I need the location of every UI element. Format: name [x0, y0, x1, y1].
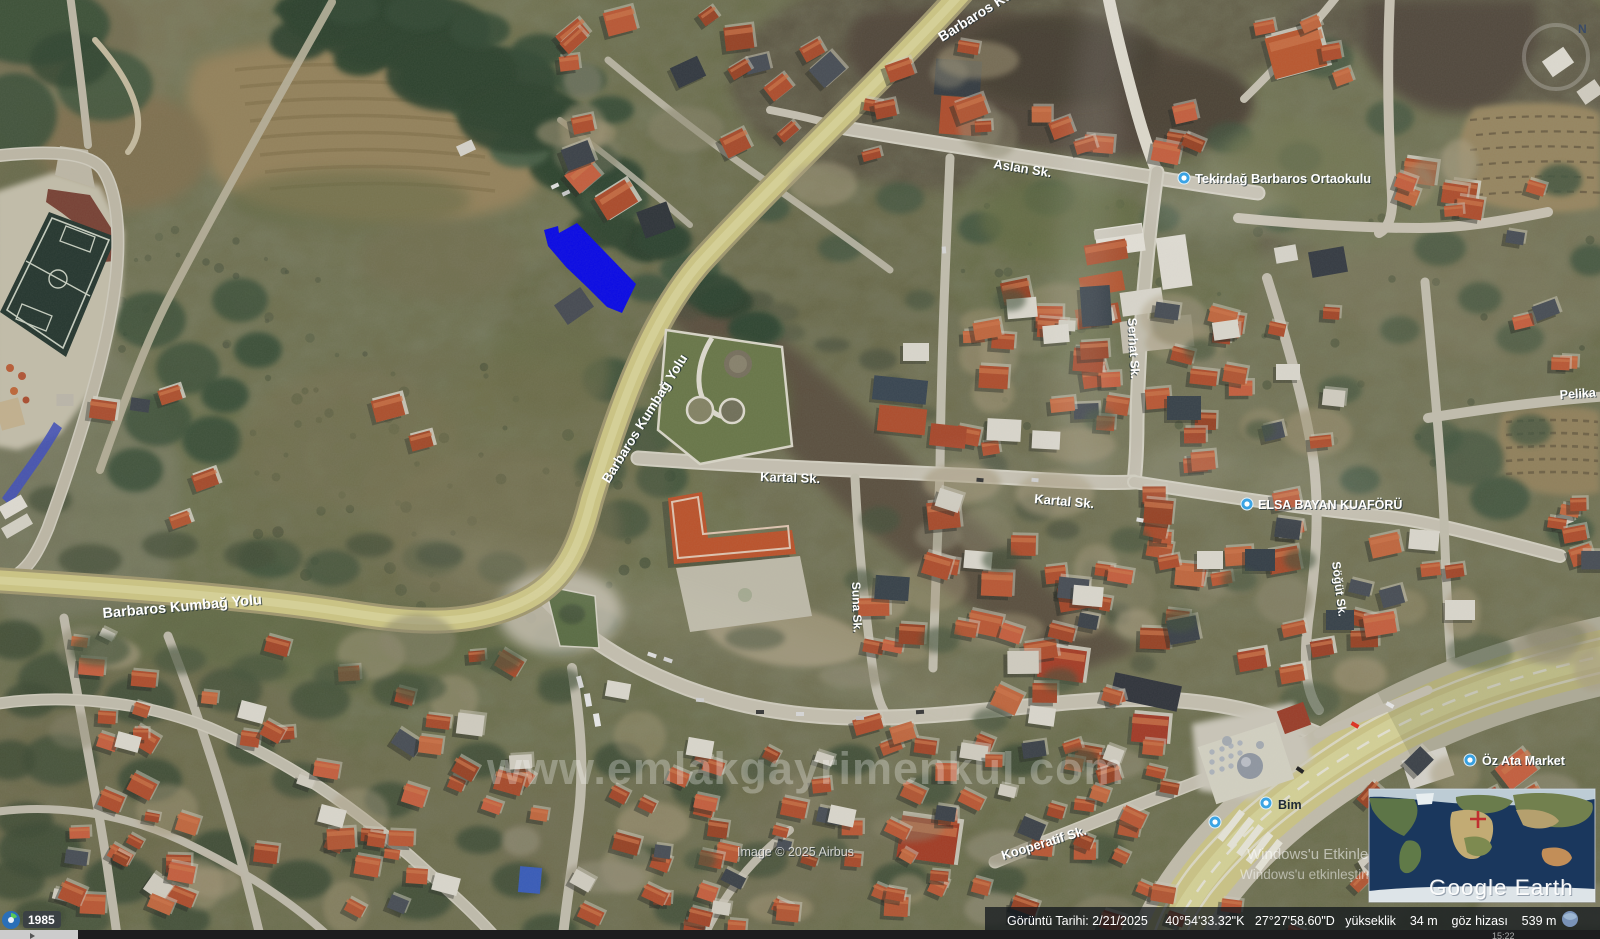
svg-text:Pelika: Pelika — [1559, 385, 1597, 402]
svg-text:www.emlakgayrimenkul.com: www.emlakgayrimenkul.com — [486, 743, 1125, 794]
svg-text:15:22: 15:22 — [1492, 931, 1515, 939]
svg-text:Google Earth: Google Earth — [1429, 875, 1574, 900]
svg-text:Tekirdağ Barbaros Ortaokulu: Tekirdağ Barbaros Ortaokulu — [1195, 171, 1371, 186]
svg-text:Windows'u Etkinleştir: Windows'u Etkinleştir — [1247, 846, 1388, 863]
svg-text:ELSA BAYAN KUAFÖRÜ: ELSA BAYAN KUAFÖRÜ — [1258, 497, 1402, 512]
svg-text:Görüntü Tarihi: 2/21/2025: Görüntü Tarihi: 2/21/2025 40°54'33.32"K … — [1007, 914, 1556, 928]
svg-text:1985: 1985 — [28, 913, 55, 927]
svg-text:Bim: Bim — [1278, 798, 1302, 812]
svg-text:Image © 2025 Airbus: Image © 2025 Airbus — [737, 845, 854, 859]
svg-text:Öz Ata Market: Öz Ata Market — [1482, 753, 1566, 768]
svg-text:Kartal Sk.: Kartal Sk. — [760, 469, 820, 486]
svg-text:Suna Sk.: Suna Sk. — [849, 582, 865, 633]
svg-text:N: N — [1578, 22, 1587, 36]
